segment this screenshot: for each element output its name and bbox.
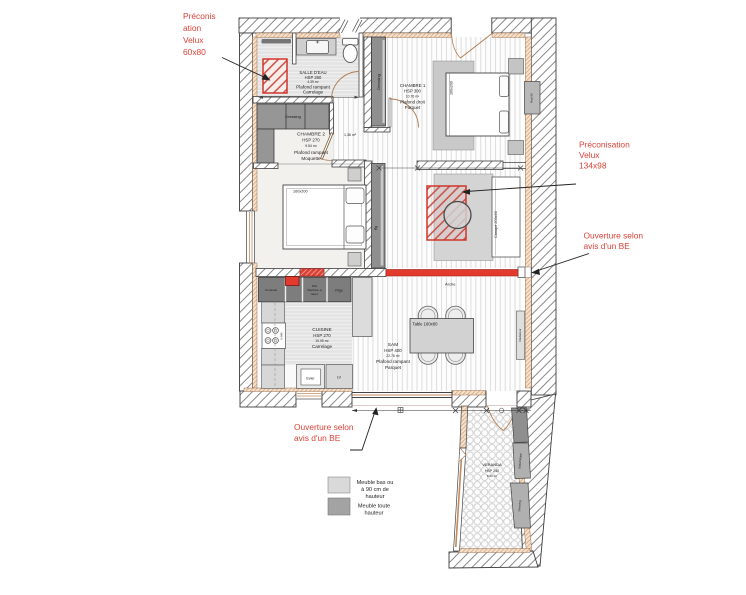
svg-text:ation: ation xyxy=(183,23,202,33)
svg-text:Carrelage: Carrelage xyxy=(312,344,333,349)
svg-text:avis d'un BE: avis d'un BE xyxy=(584,241,631,251)
svg-text:Plafond droit: Plafond droit xyxy=(400,100,425,105)
svg-text:HSP 300: HSP 300 xyxy=(404,89,421,94)
svg-text:Rad 60: Rad 60 xyxy=(530,93,534,103)
svg-text:Meuble toute: Meuble toute xyxy=(358,504,390,510)
svg-text:CHAMBRE 1: CHAMBRE 1 xyxy=(400,83,426,88)
svg-text:160x200: 160x200 xyxy=(450,81,454,95)
svg-text:Moquette: Moquette xyxy=(301,156,321,161)
svg-text:Radiateur: Radiateur xyxy=(518,328,522,341)
svg-text:VERANDA: VERANDA xyxy=(482,462,502,467)
svg-text:Rg: Rg xyxy=(374,226,378,230)
svg-text:HSP 270: HSP 270 xyxy=(302,138,320,143)
svg-text:laver: laver xyxy=(311,292,318,296)
svg-text:Velux: Velux xyxy=(579,150,600,160)
svg-text:10.05 m²: 10.05 m² xyxy=(315,339,329,343)
svg-text:Dressing: Dressing xyxy=(376,74,381,90)
svg-text:Velux: Velux xyxy=(183,35,204,45)
svg-text:Parquet: Parquet xyxy=(385,365,402,370)
svg-text:Dressing: Dressing xyxy=(517,500,522,512)
svg-text:Evier: Evier xyxy=(306,377,315,381)
svg-text:Préconis: Préconis xyxy=(183,11,216,21)
svg-text:134x98: 134x98 xyxy=(579,161,607,171)
svg-text:Préconisation: Préconisation xyxy=(579,140,630,150)
svg-text:8.40 m²: 8.40 m² xyxy=(487,474,497,478)
svg-text:Dressing: Dressing xyxy=(285,114,301,119)
svg-text:HSP 400: HSP 400 xyxy=(384,348,402,353)
svg-text:hauteur: hauteur xyxy=(366,494,385,500)
svg-text:avis d'un BE: avis d'un BE xyxy=(294,433,341,443)
svg-text:Carrelage: Carrelage xyxy=(303,90,324,95)
svg-text:Conduite: Conduite xyxy=(265,288,278,292)
svg-text:H 940: H 940 xyxy=(280,332,284,339)
svg-text:HSP 270: HSP 270 xyxy=(313,333,331,338)
svg-text:Ouverture selon: Ouverture selon xyxy=(294,422,354,432)
svg-text:à 90 cm de: à 90 cm de xyxy=(361,487,389,493)
svg-text:HSP 240: HSP 240 xyxy=(485,469,499,473)
svg-text:4.39 m²: 4.39 m² xyxy=(307,80,319,84)
svg-text:60x80: 60x80 xyxy=(183,47,206,57)
svg-text:Frigo: Frigo xyxy=(335,289,343,293)
svg-text:9.54 m²: 9.54 m² xyxy=(305,144,318,148)
svg-text:1,36 m²: 1,36 m² xyxy=(344,133,357,137)
svg-text:22.76 m²: 22.76 m² xyxy=(386,354,400,358)
svg-text:Arche: Arche xyxy=(445,282,456,287)
svg-text:Plafond rampant: Plafond rampant xyxy=(294,150,328,155)
svg-text:Plafond rampant: Plafond rampant xyxy=(376,359,410,364)
svg-text:LV: LV xyxy=(337,376,342,380)
svg-text:Meuble bas ou: Meuble bas ou xyxy=(357,480,394,486)
svg-text:Ouverture selon: Ouverture selon xyxy=(584,231,644,241)
svg-text:10.76 m²: 10.76 m² xyxy=(406,95,420,99)
svg-text:Canapé 203x90: Canapé 203x90 xyxy=(494,211,498,238)
svg-text:Parquet: Parquet xyxy=(405,105,421,110)
svg-text:160x200: 160x200 xyxy=(293,190,308,194)
svg-text:Table 160x80: Table 160x80 xyxy=(413,322,439,327)
svg-text:hauteur: hauteur xyxy=(365,511,384,517)
